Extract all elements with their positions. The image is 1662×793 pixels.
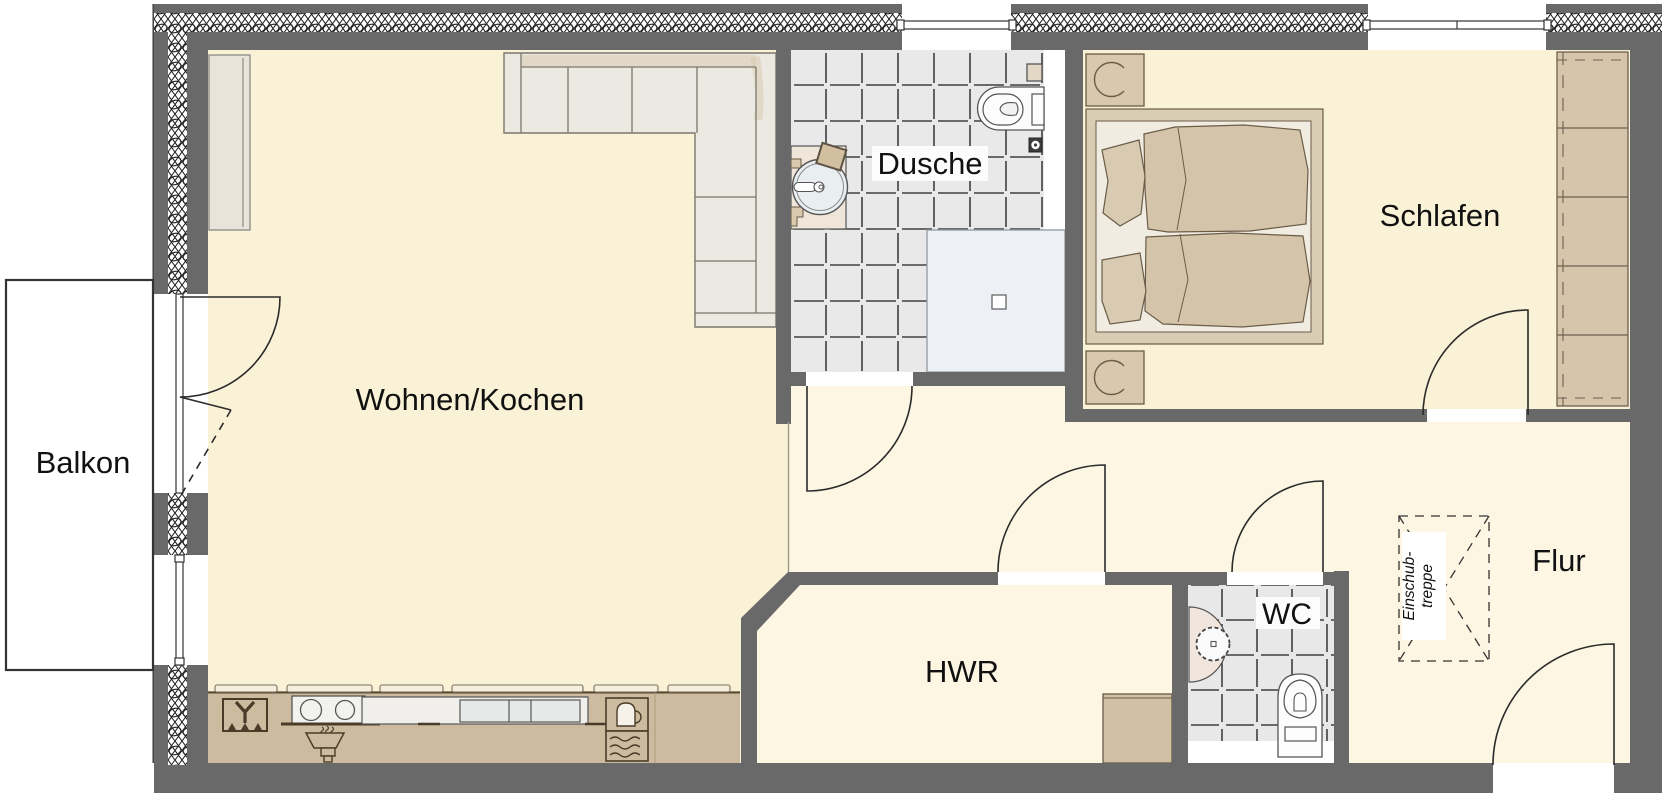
svg-text:treppe: treppe: [1419, 564, 1436, 608]
svg-text:WC: WC: [1262, 598, 1312, 631]
svg-text:Wohnen/Kochen: Wohnen/Kochen: [356, 382, 585, 417]
svg-text:Einschub-: Einschub-: [1401, 552, 1418, 621]
svg-text:Flur: Flur: [1532, 543, 1585, 578]
svg-text:Balkon: Balkon: [36, 445, 131, 480]
svg-text:HWR: HWR: [925, 654, 999, 689]
svg-text:Schlafen: Schlafen: [1380, 198, 1501, 233]
svg-text:Dusche: Dusche: [877, 146, 982, 181]
